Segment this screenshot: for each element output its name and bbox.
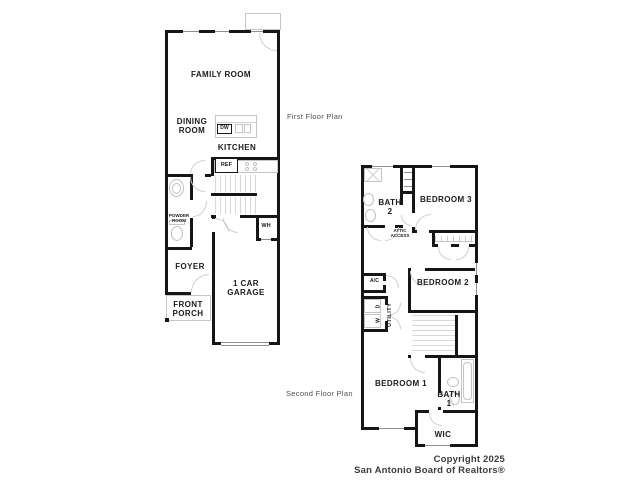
attic-access-label: ATTIC ACCESS	[386, 228, 414, 239]
door-arc	[367, 227, 381, 241]
window	[251, 31, 263, 32]
wall	[425, 268, 475, 271]
range-burner	[245, 167, 249, 171]
bedroom-3-label: BEDROOM 3	[415, 195, 477, 204]
wall	[425, 355, 475, 358]
wall	[429, 230, 475, 233]
wall	[361, 329, 388, 332]
door-arc	[193, 201, 207, 217]
toilet-bowl	[171, 226, 183, 241]
door-arc	[438, 247, 451, 260]
wall	[415, 444, 425, 447]
copyright-watermark: Copyright 2025 San Antonio Board of Real…	[320, 455, 505, 476]
shower	[364, 168, 382, 182]
door-arc	[415, 214, 431, 230]
window	[183, 31, 199, 32]
family-room-label: FAMILY ROOM	[175, 70, 267, 79]
wall	[450, 165, 478, 168]
door-arc	[456, 247, 469, 260]
range-burner	[253, 162, 257, 166]
closet-shelf	[404, 172, 412, 173]
door-leaf	[261, 239, 271, 240]
utility-label: UTILITY	[387, 297, 396, 332]
wall	[363, 290, 385, 293]
second-floor-caption: Second Floor Plan	[286, 389, 353, 398]
bedroom-2-label: BEDROOM 2	[411, 278, 475, 287]
wall	[415, 410, 429, 413]
refrigerator-label: REF	[215, 162, 238, 168]
stairs	[215, 175, 260, 192]
washer-label: W	[376, 315, 385, 327]
wall	[455, 315, 458, 355]
dryer-label: D	[376, 301, 385, 313]
second-floor-plan: BATH 2 BEDROOM 3 ATTIC ACCESS A/C D W UT…	[359, 163, 481, 455]
window	[476, 283, 477, 295]
wall	[361, 427, 379, 430]
front-porch-label: FRONT PORCH	[167, 300, 209, 318]
foyer-label: FOYER	[170, 262, 210, 271]
floor-plan-image: FAMILY ROOM DINING ROOM KITCHEN DW REF P…	[0, 0, 640, 480]
wall	[165, 174, 190, 177]
entry-stoop	[245, 13, 281, 30]
porch-post	[165, 318, 169, 322]
wall	[475, 275, 478, 283]
wall	[269, 342, 280, 345]
wall	[363, 273, 385, 276]
stairs	[412, 315, 455, 353]
door-arc	[410, 358, 425, 373]
wall	[165, 30, 168, 292]
door-arc	[259, 33, 277, 51]
wall	[212, 342, 221, 345]
window	[476, 263, 477, 275]
copyright-line2: San Antonio Board of Realtors®	[320, 466, 505, 477]
window	[432, 166, 450, 167]
closet-rod	[435, 236, 473, 242]
counter-line	[215, 122, 257, 123]
wall	[408, 310, 475, 313]
dining-room-label: DINING ROOM	[169, 117, 215, 135]
bath-2-label: BATH 2	[371, 198, 409, 216]
wall	[229, 30, 251, 33]
kitchen-label: KITCHEN	[211, 143, 263, 152]
closet-shelf	[404, 186, 412, 187]
door-arc	[190, 160, 205, 174]
window	[372, 166, 393, 167]
wall	[443, 410, 475, 413]
window	[425, 445, 450, 446]
door-arc	[191, 274, 209, 292]
ac-label: A/C	[364, 279, 385, 285]
wall	[205, 174, 211, 177]
wic-label: WIC	[421, 430, 465, 439]
closet-shelf	[404, 179, 412, 180]
garage-label: 1 CAR GARAGE	[214, 279, 278, 297]
bedroom-1-label: BEDROOM 1	[369, 379, 433, 388]
stairs	[215, 197, 260, 214]
dishwasher-label: DW	[217, 126, 232, 132]
door-arc	[386, 275, 399, 288]
door-arc	[429, 413, 442, 426]
garage-door	[221, 345, 269, 346]
wall	[165, 247, 192, 250]
wall	[199, 30, 215, 33]
wall	[469, 244, 475, 247]
wall	[475, 295, 478, 447]
first-floor-plan: FAMILY ROOM DINING ROOM KITCHEN DW REF P…	[163, 12, 285, 348]
powder-sink	[172, 183, 181, 194]
wall	[438, 355, 441, 393]
wall	[271, 238, 280, 241]
bath1-sink	[447, 377, 459, 387]
closet-shelf	[400, 191, 412, 194]
wall	[475, 165, 478, 263]
bath-1-label: BATH 1	[435, 390, 463, 408]
wall	[450, 444, 478, 447]
range-burner	[245, 162, 249, 166]
wall	[412, 165, 415, 213]
window	[379, 428, 404, 429]
bathtub	[463, 362, 472, 400]
kitchen-sink	[235, 124, 243, 133]
wall	[277, 30, 280, 345]
window	[215, 31, 229, 32]
garage-door	[221, 342, 269, 343]
range-burner	[253, 167, 257, 171]
wall	[240, 215, 280, 218]
first-floor-caption: First Floor Plan	[287, 112, 343, 121]
powder-room-label: POWDER ROOM	[166, 213, 192, 224]
water-heater-label: WH	[257, 223, 275, 229]
wall	[211, 193, 257, 196]
kitchen-sink	[244, 124, 251, 133]
wall	[415, 410, 418, 447]
